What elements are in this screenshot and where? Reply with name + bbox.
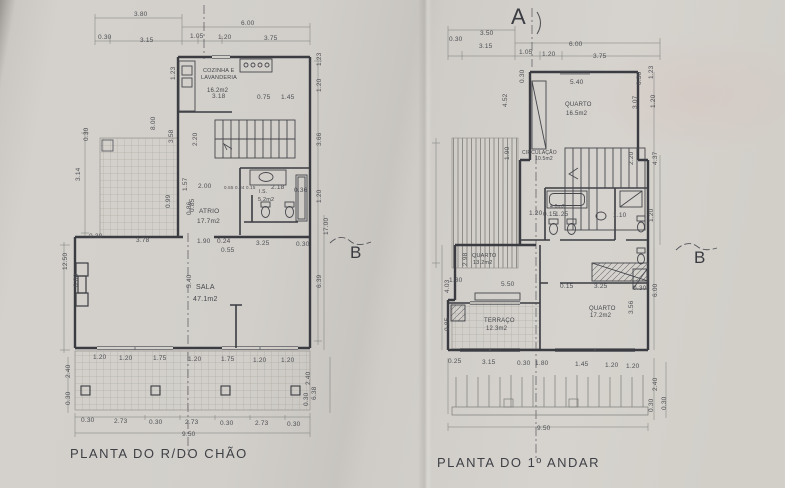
dimension-label: 2.18 (271, 185, 284, 192)
dimension-label: 0.30 (98, 35, 111, 42)
dimension-label: 0.30 (66, 392, 73, 405)
dimension-label: 1.75 (221, 357, 234, 364)
dimension-label: 3.15 (482, 360, 495, 367)
dimension-label: 3.14 (76, 168, 83, 181)
dimension-label: 3.25 (594, 284, 607, 291)
dimension-label: 1.23 (317, 53, 324, 66)
dimension-label: 3.58 (169, 130, 176, 143)
room-label: TERRAÇO (484, 318, 515, 324)
dimension-label: 0.55 0.84 0.15 (224, 186, 256, 191)
ground-floor-title: PLANTA DO R/DO CHÃO (70, 446, 248, 461)
photographed-drawing-sheet: PLANTA DO R/DO CHÃO PLANTA DO 1º ANDAR 3… (0, 0, 785, 488)
dimension-label: 3.75 (264, 36, 277, 43)
room-label: SALA (196, 284, 215, 291)
room-label: 10.5m2 (535, 157, 553, 162)
dimension-label: 8.00 (151, 117, 158, 130)
dimension-label: 1.20 (651, 95, 658, 108)
dimension-label: 0.30 (296, 242, 309, 249)
dimension-label: 3.50 (480, 31, 493, 38)
dimension-label: 3.15 (140, 38, 153, 45)
room-label: 5.2m2 (258, 198, 274, 204)
dimension-label: 9.50 (537, 426, 550, 433)
dimension-label: 6.38 (312, 387, 319, 400)
room-label: 16.2m2 (207, 88, 228, 94)
dimension-label: 0.30 (81, 418, 94, 425)
dimension-label: 1.80 (535, 361, 548, 368)
dimension-label: 1.20 (119, 356, 132, 363)
dimension-label: 12.50 (63, 253, 70, 270)
dimension-label: 0.30 (84, 128, 91, 141)
room-label: 16.5m2 (566, 111, 587, 117)
room-label: 17.2m2 (590, 313, 611, 319)
room-label: QUARTO (472, 254, 497, 260)
dimension-label: 0.99 (166, 195, 173, 208)
room-label: 12.3m2 (486, 326, 507, 332)
dimension-label: 4.03 (445, 280, 452, 293)
section-mark-overlay (0, 0, 785, 488)
section-marker: A (511, 6, 526, 28)
dimension-label: 0.15 (560, 284, 573, 291)
dimension-label: 6.00 (74, 274, 81, 287)
dimension-label: 3.66 (317, 133, 324, 146)
dimension-label: 4.52 (503, 94, 510, 107)
dimension-label: 1.20 (529, 211, 542, 218)
dimension-label: 1.20 (218, 35, 231, 42)
dimension-label: 3.15 (479, 44, 492, 51)
dimension-label: 0.36 (294, 188, 307, 195)
room-label: QUARTO (565, 102, 592, 108)
dimension-label: 3.07 (633, 96, 640, 109)
dimension-label: 6.00 (653, 284, 660, 297)
dimension-label: 2.98 (463, 253, 470, 266)
dimension-label: 2.20 (629, 152, 636, 165)
dimension-label: 3.78 (136, 238, 149, 245)
dimension-label: 2.40 (306, 372, 313, 385)
dimension-label: 1.20 (188, 357, 201, 364)
dimension-label: 6.00 (241, 21, 254, 28)
room-label: I.S. (259, 190, 267, 195)
dimension-label: 0.30 (662, 397, 669, 410)
room-label: 4.0m2 (550, 205, 565, 210)
dimension-label: 1.20 (93, 355, 106, 362)
dimension-label: 1.90 (505, 147, 512, 160)
dimension-label: 5.40 (187, 275, 194, 288)
dimension-label: 6.00 (569, 42, 582, 49)
dimension-label: 1.20 (605, 363, 618, 370)
dimension-label: 0.30 (520, 70, 527, 83)
dimension-label: 1.75 (153, 356, 166, 363)
dimension-label: 0.30 (517, 361, 530, 368)
room-label: 47.1m2 (193, 296, 218, 303)
dimension-label: 6.39 (317, 275, 324, 288)
dimension-label: 1.05 (519, 50, 532, 57)
room-label: 13.2m2 (473, 261, 493, 267)
dimension-label: 0.30 (633, 286, 646, 293)
dimension-label: 0.25 (448, 359, 461, 366)
dimension-label: 9.50 (182, 432, 195, 439)
dimension-label: 3.56 (629, 301, 636, 314)
dimension-label: 1.20 (253, 358, 266, 365)
dimension-label: 0.30 (449, 37, 462, 44)
dimension-label: 3.75 (593, 54, 606, 61)
dimension-label: 1.57 (183, 178, 190, 191)
dimension-label: 1.20 (626, 364, 639, 371)
first-floor-title: PLANTA DO 1º ANDAR (437, 455, 600, 470)
dimension-label: 1.23 (649, 66, 656, 79)
dimension-label: 0.30 (220, 421, 233, 428)
dimension-label: 0.30 (89, 234, 102, 241)
dimension-label: 1.10 (613, 213, 626, 220)
dimension-label: 1.20 (542, 52, 555, 59)
dimension-label: 4.37 (653, 152, 660, 165)
dimension-label: 0.30 (304, 393, 311, 406)
room-label: 17.7m2 (197, 219, 220, 226)
dimension-label: 1.23 (171, 67, 178, 80)
dimension-label: 3.80 (134, 12, 147, 19)
dimension-label: 0.86 (187, 202, 194, 215)
room-label: ATRIO (199, 209, 219, 216)
dimension-label: 5.50 (501, 282, 514, 289)
dimension-label: 2.73 (255, 421, 268, 428)
dimension-label: 1.45 (281, 95, 294, 102)
dimension-label: 1.25 (555, 212, 568, 219)
dimension-label: 1.20 (317, 190, 324, 203)
dimension-label: 0.30 (149, 420, 162, 427)
dimension-label: 0.30 (649, 399, 656, 412)
dimension-label: 2.73 (114, 419, 127, 426)
dimension-label: 5.40 (570, 80, 583, 87)
dimension-label: 0.30 (287, 422, 300, 429)
room-label: COZINHA E (203, 69, 234, 75)
dimension-label: 0.75 (257, 95, 270, 102)
dimension-label: 1.20 (317, 79, 324, 92)
dimension-label: 2.00 (198, 184, 211, 191)
dimension-label: 1.05 (190, 34, 203, 41)
dimension-label: 0.24 (217, 239, 230, 246)
dimension-label: 3.18 (212, 94, 225, 101)
room-label: LAVANDERIA (201, 76, 237, 82)
section-marker: B (694, 249, 706, 266)
dimension-label: 0.55 (221, 248, 234, 255)
dimension-label: 3.25 (256, 241, 269, 248)
dimension-label: 2.73 (185, 420, 198, 427)
room-label: QUARTO (589, 306, 616, 312)
dimension-label: 1.45 (575, 362, 588, 369)
section-marker: B (350, 244, 362, 261)
dimension-label: 2.40 (653, 378, 660, 391)
dimension-label: 1.20 (281, 358, 294, 365)
dimension-label: 0.30 (637, 72, 644, 85)
dimension-label: 0.85 (445, 318, 452, 331)
dimension-label: 1.90 (197, 239, 210, 246)
dimension-label: 1.20 (649, 209, 656, 222)
dimension-label: 2.20 (193, 133, 200, 146)
dimension-label: 17.00 (324, 218, 331, 235)
dimension-label: 2.40 (66, 365, 73, 378)
